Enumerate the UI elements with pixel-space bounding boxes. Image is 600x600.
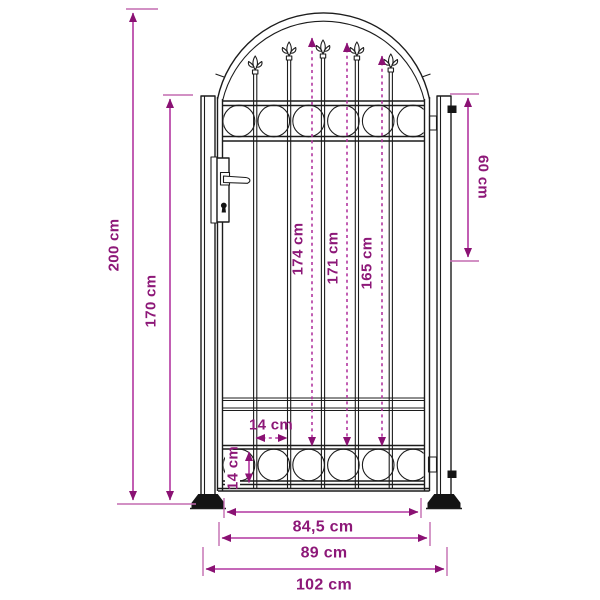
dim-label-leaf-width: 84,5 cm [293, 519, 354, 536]
dim-label-bar-height-outer: 165 cm [359, 237, 376, 290]
spear-finial-icon [384, 54, 398, 68]
dim-bar-height-inner: 171 cm [325, 43, 348, 446]
spear-finial-icon [248, 56, 262, 70]
upper-hinge-bolt [448, 106, 456, 113]
dim-label-total-height: 200 cm [106, 219, 123, 272]
spear-finial-icon [350, 42, 364, 56]
dim-label-bar-height-inner: 171 cm [325, 232, 342, 285]
dim-label-total-width: 102 cm [296, 577, 352, 594]
lower-hinge-bolt [448, 471, 456, 478]
dim-leaf-width: 84,5 cm [224, 498, 421, 536]
handle-lever [224, 176, 250, 183]
dim-bar-spacing: 14 cm [249, 417, 293, 439]
dim-bar-height-outer: 165 cm [359, 56, 383, 446]
dim-bar-height-center: 174 cm [290, 38, 313, 446]
spear-finial-icon [282, 42, 296, 56]
spear-finial-icon [316, 40, 330, 54]
dim-label-bar-spacing: 14 cm [249, 417, 293, 434]
left-post-foot [192, 495, 224, 509]
dim-label-hinge-distance: 60 cm [475, 155, 492, 199]
dim-label-ornament-band-height: 14 cm [225, 446, 242, 490]
dim-hinge-distance: 60 cm [450, 94, 492, 261]
diagram-canvas: 200 cm 170 cm 60 cm 174 cm 171 cm 1 [0, 0, 600, 600]
dim-label-frame-height: 170 cm [143, 275, 160, 328]
middle-rails [223, 398, 425, 411]
upper-latch-keeper [430, 116, 437, 130]
dim-ornament-band-height: 14 cm [225, 446, 250, 490]
right-post-foot [428, 495, 460, 509]
hinge-plate [211, 157, 217, 223]
gate-dimension-diagram: 200 cm 170 cm 60 cm 174 cm 171 cm 1 [0, 0, 600, 600]
lock-and-handle [211, 157, 250, 223]
dim-label-bar-height-center: 174 cm [290, 223, 307, 276]
dim-total-height: 200 cm [106, 9, 159, 500]
dim-label-frame-width: 89 cm [301, 545, 348, 562]
dim-frame-height: 170 cm [143, 95, 194, 500]
right-post [426, 96, 462, 509]
